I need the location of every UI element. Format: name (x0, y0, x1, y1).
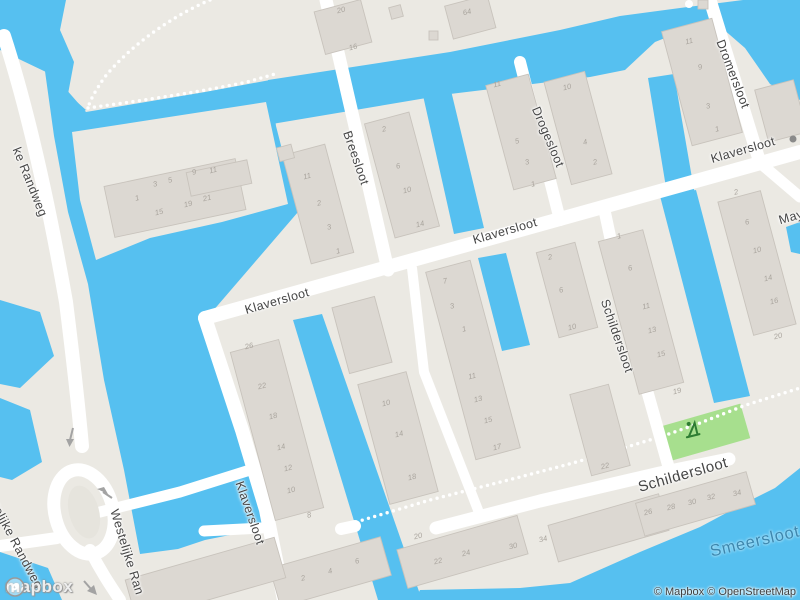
basemap-layer (0, 0, 800, 600)
roundabout-exit-west (0, 538, 57, 546)
mapbox-logo-icon (5, 577, 25, 597)
map-attribution[interactable]: © Mapbox © OpenStreetMap (654, 586, 796, 598)
map-canvas[interactable]: ke Randwegestelijke RandwegWestelijke Ra… (0, 0, 800, 600)
poi-icon (790, 136, 797, 143)
road-stub-west (204, 528, 262, 531)
road-stub-mid (341, 526, 355, 529)
mapbox-logo[interactable]: mapbox (5, 577, 73, 597)
road-dot (685, 0, 693, 8)
